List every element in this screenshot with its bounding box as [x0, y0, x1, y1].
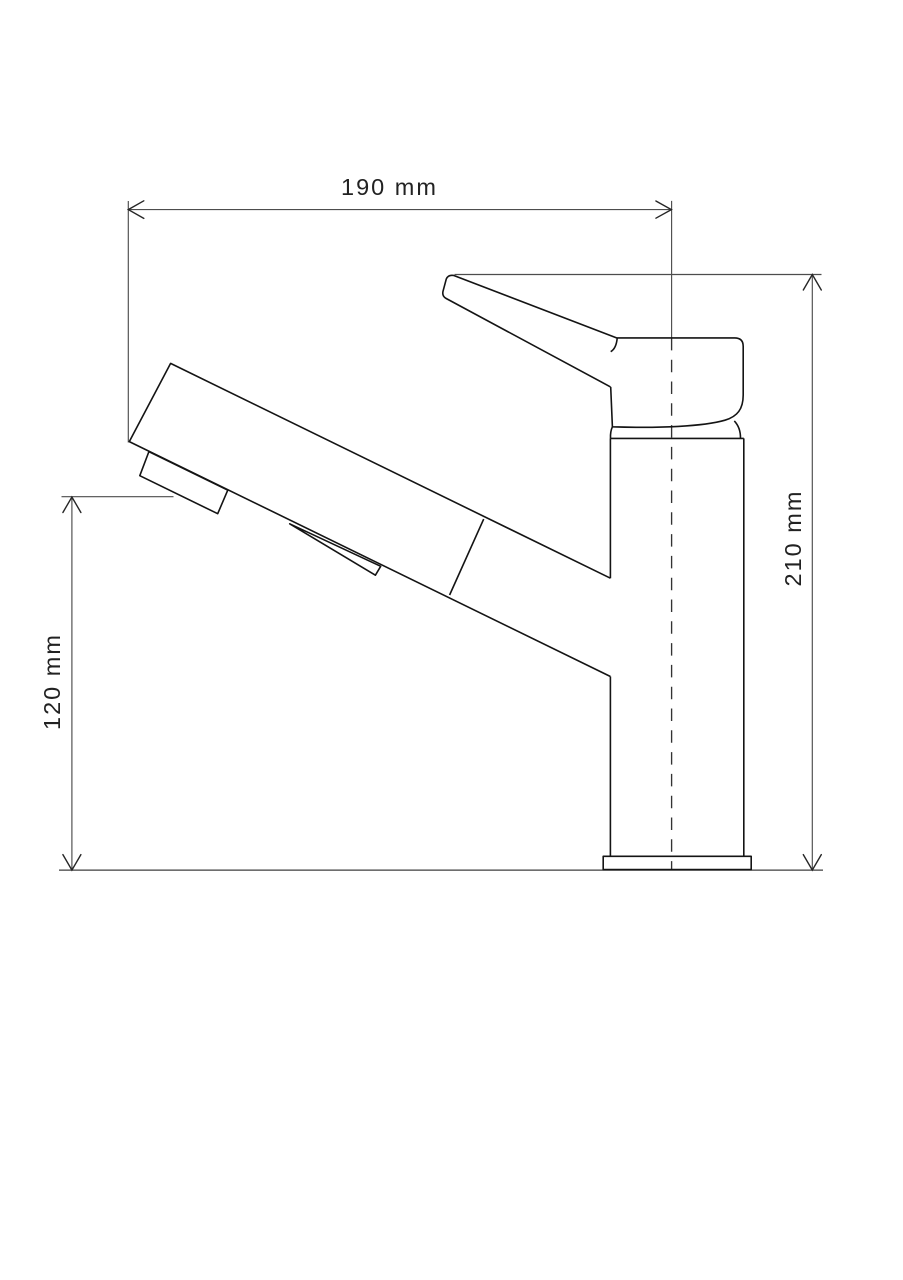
svg-text:190 mm: 190 mm [341, 174, 438, 200]
svg-text:120 mm: 120 mm [39, 633, 65, 730]
svg-text:210 mm: 210 mm [780, 490, 806, 587]
